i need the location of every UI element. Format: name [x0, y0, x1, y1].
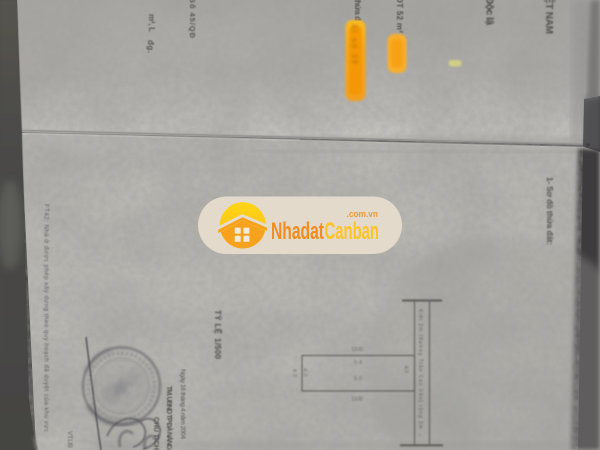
svg-text:FT42: Nhà ở được phép xây dựng: FT42: Nhà ở được phép xây dựng theo quy … — [43, 204, 50, 432]
svg-text:ỆT NAM: ỆT NAM — [543, 0, 556, 34]
svg-text:TỶ LỆ: TỶ LỆ — [213, 310, 222, 335]
svg-text:Độc lậ: Độc lậ — [484, 0, 495, 25]
svg-text:Canban: Canban — [325, 218, 380, 245]
svg-text:TM. UBND TP ĐÀ NẴNG: TM. UBND TP ĐÀ NẴNG — [165, 386, 174, 450]
svg-text:5-0: 5-0 — [354, 376, 362, 382]
svg-text:1- Sơ đồ thửa đất:: 1- Sơ đồ thửa đất: — [545, 177, 554, 245]
svg-text:.com.vn: .com.vn — [347, 209, 379, 219]
svg-text:m², L: m², L — [147, 14, 156, 32]
svg-text:Số 45/QĐ: Số 45/QĐ — [188, 0, 197, 39]
svg-text:VT.UB: VT.UB — [66, 431, 73, 448]
svg-text:5-4: 5-4 — [354, 360, 362, 366]
svg-text:13.00: 13.00 — [351, 347, 363, 353]
svg-text:Kiệt 2m (đường Trần Cao Vân) r: Kiệt 2m (đường Trần Cao Vân) rộng 2m → — [417, 309, 423, 437]
svg-text:đg.: đg. — [146, 40, 155, 53]
svg-text:Ngày 16 tháng 4 năm 2004: Ngày 16 tháng 4 năm 2004 — [179, 369, 186, 439]
svg-text:13.00: 13.00 — [351, 397, 363, 403]
svg-text:Nhadat: Nhadat — [271, 218, 324, 245]
svg-text:thửa đ: thửa đ — [353, 0, 362, 21]
svg-text:4.0: 4.0 — [403, 366, 409, 373]
svg-text:4.0: 4.0 — [302, 369, 308, 377]
svg-text:4.0: 4.0 — [291, 369, 297, 377]
svg-text:DT 52 m²: DT 52 m² — [395, 0, 404, 33]
svg-text:1/500: 1/500 — [213, 338, 222, 360]
